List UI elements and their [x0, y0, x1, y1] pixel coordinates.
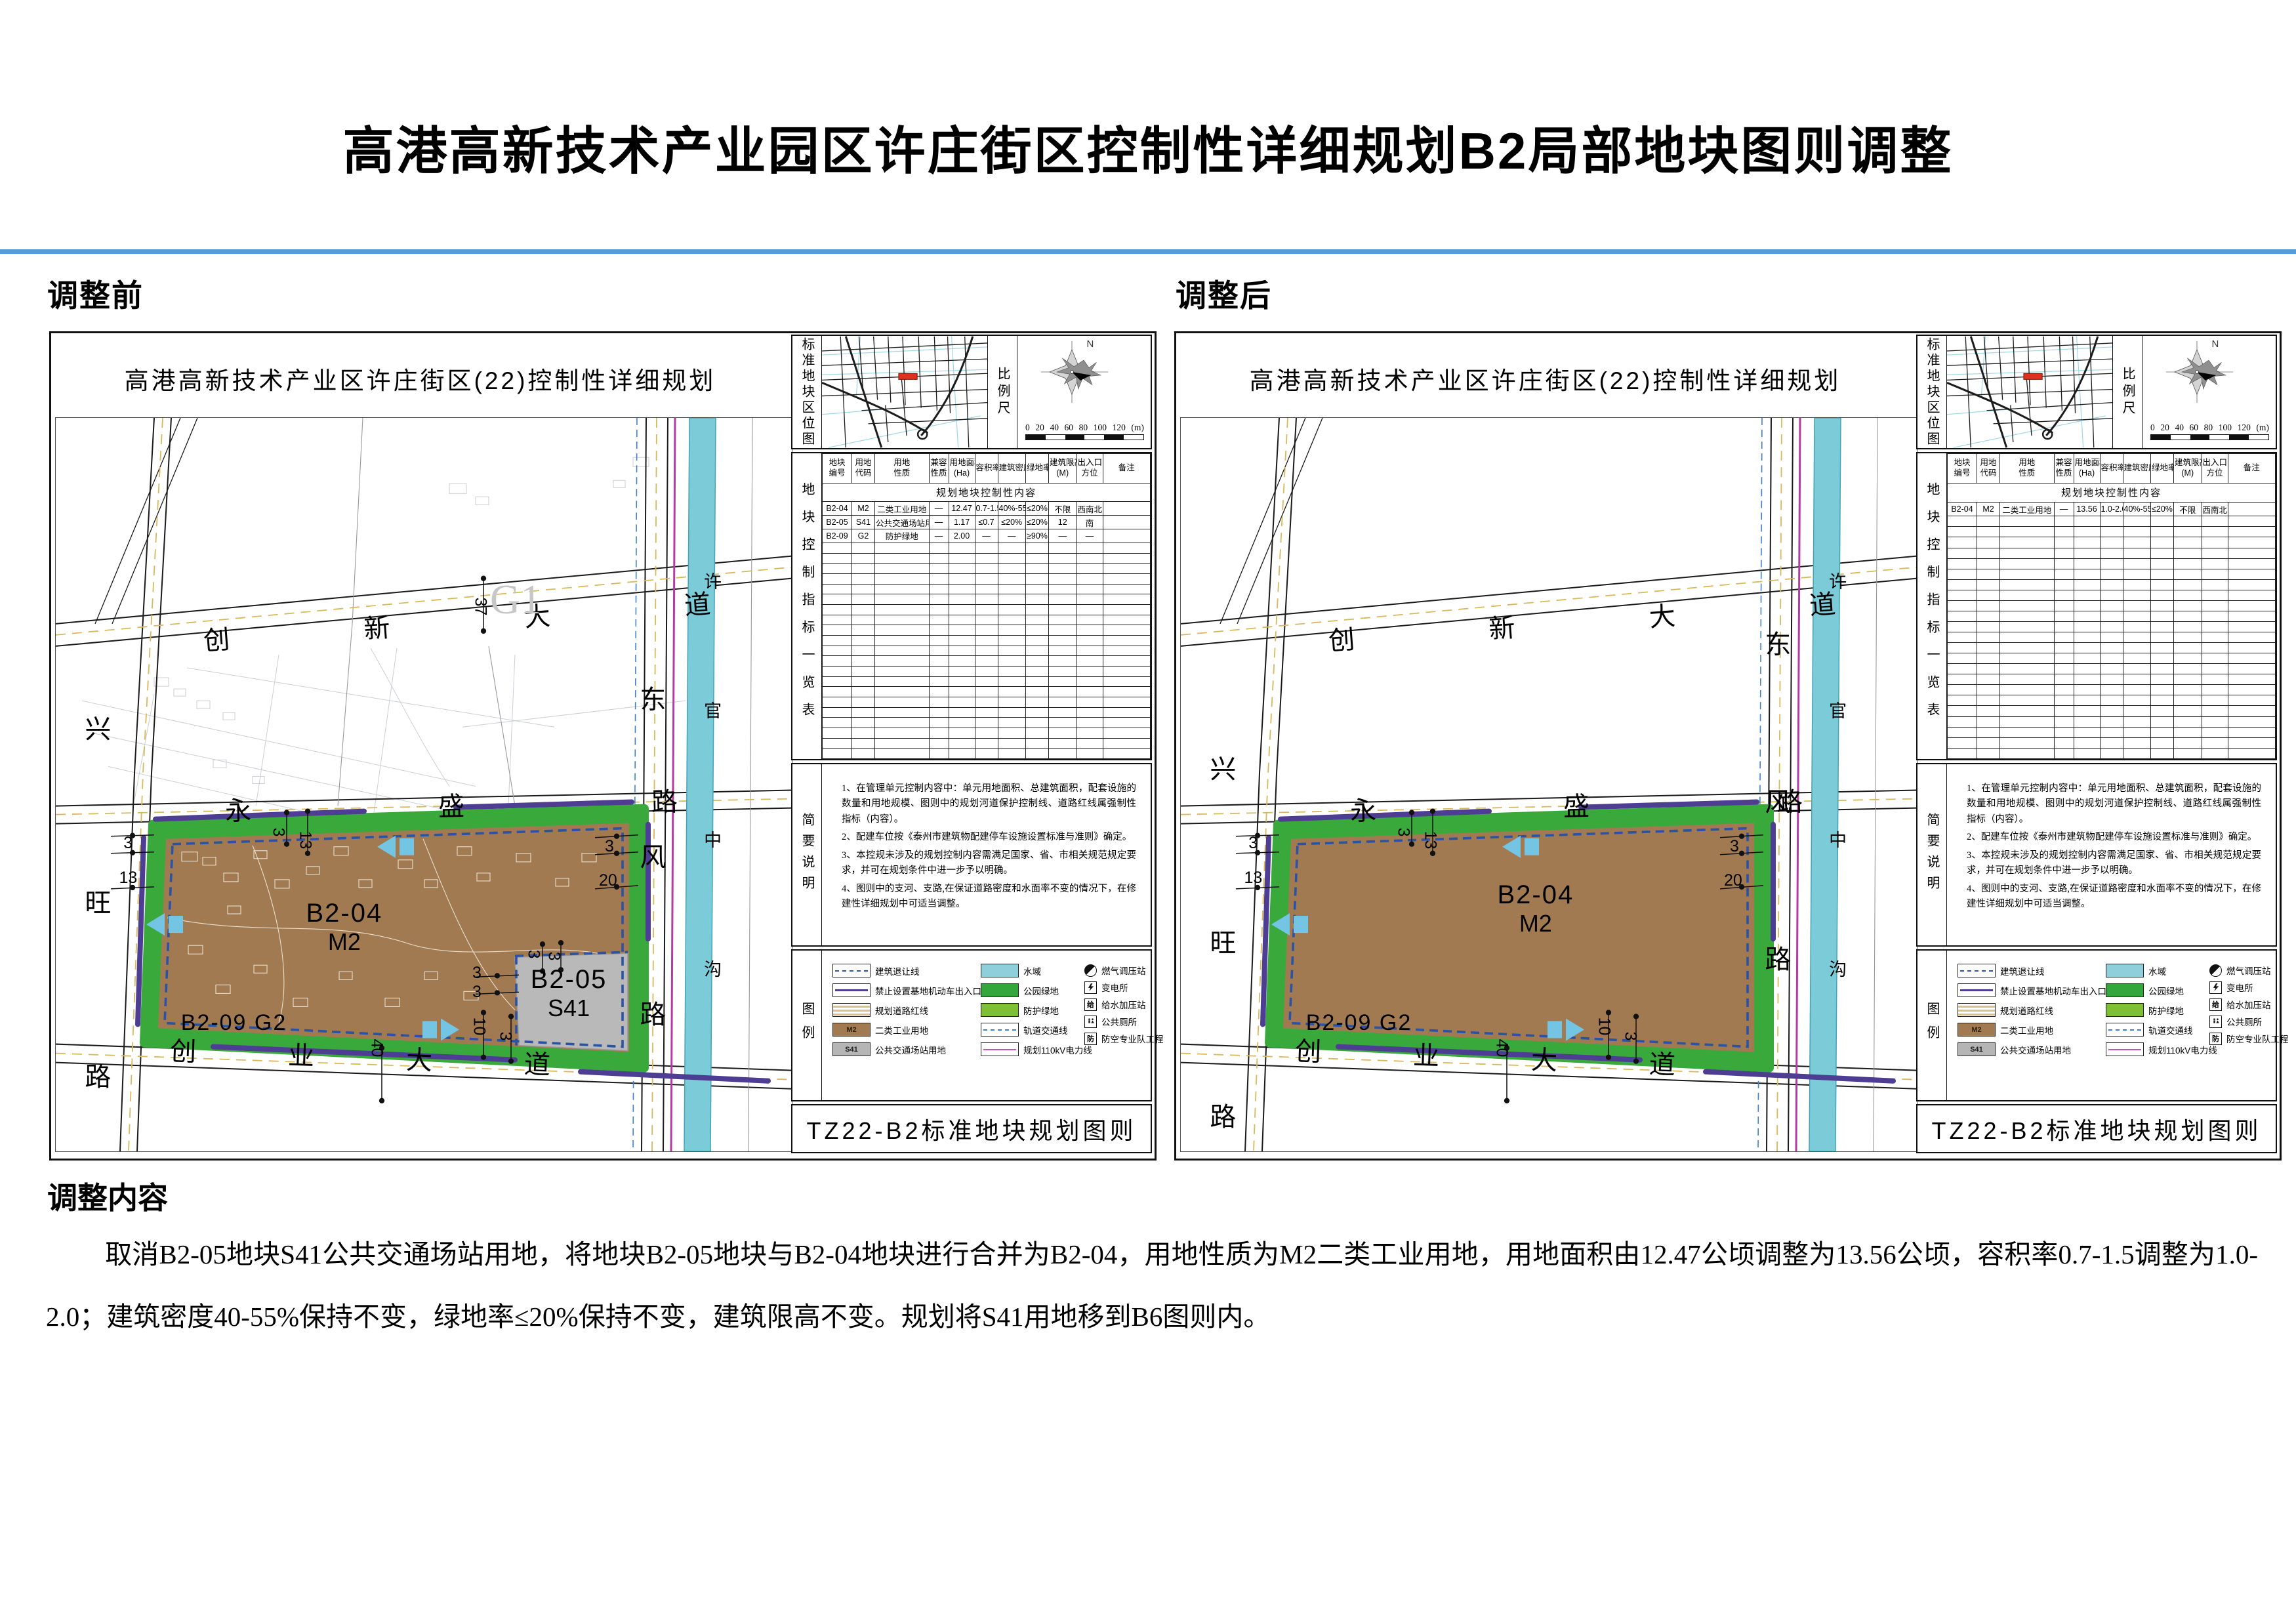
substation-lightning-icon [2209, 981, 2222, 994]
dim-bottom-3: 3 [1622, 1032, 1638, 1041]
table-cell: S41 [852, 516, 875, 529]
dim-bottom-10: 10 [1595, 1017, 1612, 1035]
power-line-110kv [671, 418, 675, 1151]
legend-item-m2: M2二类工业用地 [1958, 1023, 2101, 1037]
scale-bar: 0 20 40 60 80 100 120 (m) [2150, 422, 2269, 440]
col-header: 容积率 [2100, 454, 2123, 483]
panel-before: 高港高新技术产业区许庄街区(22)控制性详细规划 [49, 331, 1157, 1161]
legend-item-road-redline: 规划道路红线 [1958, 1003, 2101, 1017]
legend-item-park-green: 公园绿地 [2106, 983, 2205, 997]
locator-box: 标准地块区位图 [791, 335, 1152, 449]
table-cell: G2 [852, 529, 875, 543]
table-empty-row [823, 718, 1151, 728]
table-cell: — [929, 516, 949, 529]
park-green-swatch [2106, 983, 2144, 997]
road-redline-swatch [1958, 1003, 1996, 1017]
panel-sidebar: 标准地块区位图 [791, 335, 1152, 1153]
table-cell: 防护绿地 [875, 529, 930, 543]
legend-box: 图例 建筑退让线 禁止设置基地机动车出入口范围 规划道路红线 M2二类工业用地 … [1916, 949, 2277, 1101]
civil-defense-icon: 防 [2209, 1033, 2222, 1045]
scale-tick: 40 [1050, 422, 1059, 433]
sheet-title: TZ22-B2标准地块规划图则 [1917, 1112, 2276, 1146]
legend-item-setback-line: 建筑退让线 [1958, 964, 2101, 977]
dim-top-3: 3 [270, 828, 287, 837]
table-empty-row [1948, 632, 2276, 643]
notes-vertical-label: 简要说明 [1925, 813, 1938, 897]
table-cell [1103, 502, 1151, 516]
legend-item-substation: 变电所 [1084, 981, 1153, 994]
legend-item-water-pump: 给给水加压站 [2209, 998, 2278, 1011]
table-cell: — [1076, 529, 1103, 543]
m2-swatch: M2 [1958, 1023, 1996, 1037]
dim-top-3: 3 [1395, 828, 1412, 837]
setback-line-swatch [832, 964, 871, 977]
legend-item-civil-defense: 防防空专业队工程 [1084, 1032, 1153, 1045]
dim-road-40: 40 [368, 1039, 384, 1058]
locator-label: 标准地块区位图 [800, 337, 813, 447]
gas-regulator-icon [2209, 964, 2222, 977]
table-empty-row [1948, 653, 2276, 664]
panel-subtitle: 高港高新技术产业区许庄街区(22)控制性详细规划 [1176, 361, 1914, 396]
sheet-title-box: TZ22-B2标准地块规划图则 [1916, 1104, 2277, 1153]
page-title: 高港高新技术产业园区许庄街区控制性详细规划B2局部地块图则调整 [0, 110, 2296, 184]
scale-bar: 0 20 40 60 80 100 120 (m) [1025, 422, 1144, 440]
locator-box: 标准地块区位图 [1916, 335, 2277, 449]
table-cell: 西南北 [2202, 502, 2228, 516]
river-label-xuguan-ditch: 许官中沟 [1827, 572, 1845, 1089]
table-empty-row [1948, 621, 2276, 632]
col-header: 用地性质 [875, 454, 930, 483]
table-cell: ≥90% [1026, 529, 1049, 543]
col-header: 容积率 [975, 454, 998, 483]
table-empty-row [823, 687, 1151, 697]
col-header: 兼容性质 [929, 454, 949, 483]
locator-map [1947, 336, 2113, 448]
block-code: B2-04 [1497, 880, 1574, 910]
legend-item-buffer-green: 防护绿地 [981, 1003, 1080, 1017]
legend-item-road-redline: 规划道路红线 [832, 1003, 975, 1017]
dim-road-40: 40 [1493, 1039, 1509, 1058]
legend-item-s41: S41公共交通场站用地 [1958, 1042, 2101, 1056]
table-cell: B2-04 [1948, 502, 1977, 516]
dim-left-13: 13 [1244, 870, 1262, 886]
col-header: 用地性质 [2000, 454, 2055, 483]
scale-bar-segments [1025, 434, 1144, 440]
table-cell: 二类工业用地 [2000, 502, 2055, 516]
title-underline-rule [0, 249, 2296, 254]
table-empty-row [1948, 611, 2276, 621]
table-empty-row [1948, 748, 2276, 758]
legend-item-toilet: 公共厕所 [2209, 1015, 2278, 1028]
table-empty-row [823, 738, 1151, 749]
water-swatch [981, 964, 1019, 977]
notes-box: 简要说明 1、在管理单元控制内容中：单元用地面积、总建筑面积，配套设施的数量和用… [1916, 763, 2277, 947]
table-cell: B2-05 [823, 516, 852, 529]
table-empty-row [823, 646, 1151, 656]
table-cell [2228, 502, 2276, 516]
locator-map-drawing [1947, 336, 2112, 448]
table-cell: 二类工业用地 [875, 502, 930, 516]
table-empty-row [1948, 664, 2276, 674]
table-empty-row [823, 615, 1151, 625]
table-empty-row [823, 625, 1151, 636]
table-cell: 1.0-2.0 [2100, 502, 2123, 516]
table-empty-row [823, 594, 1151, 605]
table-empty-row [1948, 558, 2276, 569]
table-empty-row [823, 666, 1151, 676]
legend-item-rail: 轨道交通线 [981, 1023, 1080, 1037]
compass-rose-icon [2154, 340, 2240, 404]
sheet-title-box: TZ22-B2标准地块规划图则 [791, 1104, 1152, 1153]
table-cell: M2 [852, 502, 875, 516]
table-cell: — [929, 529, 949, 543]
table-empty-row [1948, 590, 2276, 600]
table-empty-row [1948, 600, 2276, 611]
water-pump-icon: 给 [2209, 998, 2222, 1011]
note-item: 1、在管理单元控制内容中：单元用地面积、总建筑面积，配套设施的数量和用地规模、图… [1967, 781, 2261, 827]
control-indicator-table: 规划地块控制性内容 地块编号 用地代码 用地性质 兼容性质 用地面积(Ha) 容… [1947, 453, 2276, 759]
table-cell: ≤20% [1026, 516, 1049, 529]
note-item: 2、配建车位按《泰州市建筑物配建停车设施设置标准与准则》确定。 [1967, 830, 2261, 845]
table-empty-row [1948, 569, 2276, 579]
block-label-B2-04: B2-04 M2 [306, 898, 382, 955]
table-cell: 公共交通场站用地 [875, 516, 930, 529]
table-empty-row [823, 656, 1151, 667]
table-empty-row [823, 573, 1151, 584]
table-cell: 不限 [2174, 502, 2202, 516]
dim-left-3: 3 [1248, 835, 1258, 852]
table-empty-row [1948, 674, 2276, 685]
table-empty-row [823, 728, 1151, 738]
table-empty-row [1948, 737, 2276, 748]
block-label-B2-04: B2-04 M2 [1497, 880, 1574, 937]
control-table-vertical-label: 地块控制指标一览表 [800, 482, 813, 730]
scale-tick: 20 [2160, 422, 2169, 433]
cadastral-underlay [82, 457, 686, 839]
dim-left-3: 3 [123, 835, 133, 852]
table-empty-row [823, 543, 1151, 553]
col-header: 建筑限高(M) [2174, 454, 2202, 483]
table-cell: 0.7-1.5 [975, 502, 998, 516]
col-header: 建筑密度 [998, 454, 1026, 483]
no-access-swatch [1958, 983, 1996, 997]
table-body: B2-04M2二类工业用地—13.561.0-2.040%-55%≤20%不限西… [1948, 502, 2276, 758]
dim-top-13: 13 [1422, 831, 1438, 849]
dim-right-20: 20 [1724, 873, 1742, 889]
water-pump-icon: 给 [1084, 998, 1097, 1011]
map-drawing [1181, 418, 1917, 1151]
table-cell [1103, 516, 1151, 529]
power-line-110kv [1796, 418, 1800, 1151]
scale-tick: 0 [1025, 422, 1030, 433]
col-header: 绿地率 [2151, 454, 2174, 483]
note-item: 2、配建车位按《泰州市建筑物配建停车设施设置标准与准则》确定。 [842, 830, 1136, 845]
s41-swatch: S41 [832, 1042, 871, 1056]
scale-tick: 80 [1079, 422, 1088, 433]
note-item: 3、本控规未涉及的规划控制内容需满足国家、省、市相关规范规定要求，并可在规划条件… [842, 848, 1136, 879]
sheet-title: TZ22-B2标准地块规划图则 [792, 1112, 1151, 1146]
table-empty-row [1948, 706, 2276, 716]
table-empty-row [1948, 643, 2276, 653]
legend-item-substation: 变电所 [2209, 981, 2278, 994]
table-empty-row [823, 749, 1151, 759]
locator-label: 标准地块区位图 [1925, 337, 1938, 447]
table-cell: 40%-55% [998, 502, 1026, 516]
dim-s41-top-3: 3 [525, 950, 542, 959]
page: { "page": { "title": "高港高新技术产业园区许庄街区控制性详… [0, 0, 2296, 1623]
scale-bar-numbers: 0 20 40 60 80 100 120 (m) [1025, 422, 1144, 433]
buffer-green-swatch [981, 1003, 1019, 1017]
legend-vertical-label: 图例 [1925, 1002, 1938, 1049]
table-empty-row [823, 584, 1151, 594]
control-table-box: 地块控制指标一览表 规划地块控制性内容 地块编号 用地代码 用地性质 [791, 452, 1152, 760]
road-label-dongfeng-road: 东风路 [637, 686, 663, 1152]
legend-item-park-green: 公园绿地 [981, 983, 1080, 997]
map-drawing [56, 418, 792, 1151]
panel-subtitle: 高港高新技术产业区许庄街区(22)控制性详细规划 [51, 361, 789, 396]
block-use-code: S41 [531, 995, 607, 1021]
rail-swatch [981, 1023, 1019, 1037]
legend-item-buffer-green: 防护绿地 [2106, 1003, 2205, 1017]
table-title: 规划地块控制性内容 [823, 483, 1151, 502]
scale-tick: 60 [2190, 422, 2199, 433]
setback-line-swatch [1958, 964, 1996, 977]
col-header: 用地代码 [1977, 454, 2000, 483]
table-header-row: 地块编号 用地代码 用地性质 兼容性质 用地面积(Ha) 容积率 建筑密度 绿地… [823, 454, 1151, 483]
legend-item-power: 规划110kV电力线 [2106, 1042, 2205, 1056]
civil-defense-icon: 防 [1084, 1033, 1097, 1045]
compass-area: N 0 20 40 60 80 100 [1017, 336, 1151, 448]
legend-item-gas-station: 燃气调压站 [2209, 964, 2278, 977]
table-cell: 西南北 [1076, 502, 1103, 516]
col-header: 地块编号 [823, 454, 852, 483]
table-empty-row [1948, 548, 2276, 558]
note-item: 4、图则中的支河、支路,在保证道路密度和水面率不变的情况下，在修建性详细规划中可… [842, 882, 1136, 913]
scale-label: 比例尺 [2121, 367, 2134, 418]
block-use-code: M2 [306, 928, 382, 955]
table-cell: 不限 [1049, 502, 1077, 516]
legend-box: 图例 建筑退让线 禁止设置基地机动车出入口范围 规划道路红线 M2二类工业用地 … [791, 949, 1152, 1101]
legend-item-civil-defense: 防防空专业队工程 [2209, 1032, 2278, 1045]
dim-s41-top-3b: 3 [545, 952, 562, 961]
table-header-row: 地块编号 用地代码 用地性质 兼容性质 用地面积(Ha) 容积率 建筑密度 绿地… [1948, 454, 2276, 483]
table-empty-row [823, 635, 1151, 646]
table-empty-row [823, 564, 1151, 574]
note-item: 3、本控规未涉及的规划控制内容需满足国家、省、市相关规范规定要求，并可在规划条件… [1967, 848, 2261, 879]
legend-item-rail: 轨道交通线 [2106, 1023, 2205, 1037]
compass-rose-icon [1029, 340, 1115, 404]
table-empty-row [1948, 516, 2276, 527]
block-code: B2-05 [531, 964, 607, 995]
scale-tick: 20 [1035, 422, 1044, 433]
table-body: B2-04M2二类工业用地—12.470.7-1.540%-55%≤20%不限西… [823, 502, 1151, 759]
table-empty-row [1948, 527, 2276, 537]
col-header: 建筑限高(M) [1049, 454, 1077, 483]
col-header: 兼容性质 [2054, 454, 2074, 483]
col-header: 用地面积(Ha) [949, 454, 975, 483]
table-cell: — [998, 529, 1026, 543]
table-empty-row [1948, 685, 2276, 695]
block-label-B2-09-G2: B2-09 G2 [1306, 1010, 1412, 1036]
dim-bottom-10: 10 [470, 1017, 487, 1035]
parcel-label-G1: G1 [490, 575, 541, 624]
scale-tick-unit: (m) [2256, 422, 2269, 433]
scale-bar-segments [2150, 434, 2269, 440]
dim-s41-left-3: 3 [472, 965, 482, 981]
table-row: B2-09G2防护绿地—2.00——≥90%—— [823, 529, 1151, 543]
control-table-box: 地块控制指标一览表 规划地块控制性内容 地块编号 用地代码 用地性质 [1916, 452, 2277, 760]
legend-item-water: 水域 [2106, 964, 2205, 977]
table-cell: M2 [1977, 502, 2000, 516]
scale-tick: 100 [1094, 422, 1107, 433]
public-toilet-icon [1084, 1016, 1097, 1028]
col-header: 用地面积(Ha) [2074, 454, 2100, 483]
scale-tick: 80 [2204, 422, 2213, 433]
scale-tick: 40 [2175, 422, 2184, 433]
note-item: 1、在管理单元控制内容中：单元用地面积、总建筑面积，配套设施的数量和用地规模、图… [842, 781, 1136, 827]
legend-item-gas-station: 燃气调压站 [1084, 964, 1153, 977]
legend-item-water-pump: 给给水加压站 [1084, 998, 1153, 1011]
table-cell: ≤20% [1026, 502, 1049, 516]
table-row: B2-04M2二类工业用地—13.561.0-2.040%-55%≤20%不限西… [1948, 502, 2276, 516]
m2-swatch: M2 [832, 1023, 871, 1037]
adjust-content-text: 取消B2-05地块S41公共交通场站用地，将地块B2-05地块与B2-04地块进… [46, 1223, 2258, 1348]
table-empty-row [1948, 537, 2276, 548]
table-empty-row [823, 707, 1151, 718]
compass-area: N 0 20 40 60 80 100 [2142, 336, 2276, 448]
s41-swatch: S41 [1958, 1042, 1996, 1056]
control-table-vertical-label: 地块控制指标一览表 [1925, 482, 1938, 730]
table-row: B2-05S41公共交通场站用地—1.17≤0.7≤20%≤20%12南 [823, 516, 1151, 529]
locator-map-drawing [822, 336, 987, 448]
park-green-swatch [981, 983, 1019, 997]
power-line-swatch [981, 1042, 1019, 1056]
table-cell: — [1049, 529, 1077, 543]
dim-top-13: 13 [297, 831, 313, 849]
rail-swatch [2106, 1023, 2144, 1037]
dim-right-20: 20 [599, 873, 617, 889]
road-label-xingwang-road: 兴旺路 [82, 715, 108, 1152]
col-header: 备注 [2228, 454, 2276, 483]
power-line-swatch [2106, 1042, 2144, 1056]
adjust-content-heading: 调整内容 [47, 1174, 168, 1218]
public-toilet-icon [2209, 1016, 2222, 1028]
legend-item-no-access: 禁止设置基地机动车出入口范围 [1958, 983, 2101, 997]
legend-item-power: 规划110kV电力线 [981, 1042, 1080, 1056]
section-label-before: 调整前 [47, 270, 144, 316]
table-cell: — [2054, 502, 2074, 516]
plan-map: 创新大道 永盛路 创业大道 兴旺路 东风路 许官中沟 B2-04 M2 B2-0… [1180, 417, 1917, 1152]
locator-map [822, 336, 988, 448]
col-header: 建筑密度 [2123, 454, 2151, 483]
table-empty-row [1948, 579, 2276, 590]
table-cell: 40%-55% [2123, 502, 2151, 516]
table-cell: 13.56 [2074, 502, 2100, 516]
section-label-after: 调整后 [1176, 270, 1272, 316]
table-cell [1103, 529, 1151, 543]
table-empty-row [1948, 727, 2276, 737]
water-swatch [2106, 964, 2144, 977]
scale-bar-numbers: 0 20 40 60 80 100 120 (m) [2150, 422, 2269, 433]
road-redline-swatch [832, 1003, 871, 1017]
scale-tick-unit: (m) [1131, 422, 1144, 433]
col-header: 备注 [1103, 454, 1151, 483]
buffer-green-swatch [2106, 1003, 2144, 1017]
col-header: 出入口方位 [1076, 454, 1103, 483]
substation-lightning-icon [1084, 981, 1097, 994]
dim-bottom-3: 3 [497, 1032, 513, 1041]
col-header: 地块编号 [1948, 454, 1977, 483]
scale-tick: 100 [2219, 422, 2232, 433]
dim-road-37: 37 [472, 598, 488, 616]
table-empty-row [823, 553, 1151, 564]
note-item: 4、图则中的支河、支路,在保证道路密度和水面率不变的情况下，在修建性详细规划中可… [1967, 882, 2261, 913]
scale-label: 比例尺 [996, 367, 1009, 418]
scale-tick: 120 [2238, 422, 2251, 433]
minor-roads [1874, 418, 1877, 1151]
control-indicator-table: 规划地块控制性内容 地块编号 用地代码 用地性质 兼容性质 用地面积(Ha) 容… [822, 453, 1151, 759]
dim-left-13: 13 [119, 870, 137, 886]
scale-tick: 0 [2150, 422, 2155, 433]
table-empty-row [1948, 716, 2276, 727]
table-cell: — [929, 502, 949, 516]
block-label-B2-05: B2-05 S41 [531, 964, 607, 1021]
road-label-dongfeng-road: 东风路 [1762, 630, 1788, 1103]
legend-item-setback-line: 建筑退让线 [832, 964, 975, 977]
table-empty-row [823, 676, 1151, 687]
table-cell: 2.00 [949, 529, 975, 543]
legend-item-no-access: 禁止设置基地机动车出入口范围 [832, 983, 975, 997]
block-label-B2-09-G2: B2-09 G2 [181, 1010, 287, 1036]
legend-item-m2: M2二类工业用地 [832, 1023, 975, 1037]
notes-box: 简要说明 1、在管理单元控制内容中：单元用地面积、总建筑面积，配套设施的数量和用… [791, 763, 1152, 947]
dim-right-3: 3 [1730, 838, 1739, 855]
road-label-xingwang-road: 兴旺路 [1207, 755, 1233, 1152]
col-header: 用地代码 [852, 454, 875, 483]
block-use-code: M2 [1497, 910, 1574, 937]
no-access-swatch [832, 983, 871, 997]
table-cell: ≤20% [2151, 502, 2174, 516]
scale-tick: 120 [1113, 422, 1126, 433]
plan-map: 创新大道 永盛路 创业大道 兴旺路 东风路 许官中沟 B2-04 M2 B2-0… [55, 417, 792, 1152]
table-cell: ≤20% [998, 516, 1026, 529]
block-code: B2-04 [306, 898, 382, 928]
table-empty-row [823, 697, 1151, 707]
dim-s41-left-3b: 3 [472, 984, 482, 1000]
table-cell: 1.17 [949, 516, 975, 529]
table-empty-row [823, 604, 1151, 615]
table-cell: ≤0.7 [975, 516, 998, 529]
legend-item-s41: S41公共交通场站用地 [832, 1042, 975, 1056]
legend-item-water: 水域 [981, 964, 1080, 977]
table-row: B2-04M2二类工业用地—12.470.7-1.540%-55%≤20%不限西… [823, 502, 1151, 516]
scale-tick: 60 [1065, 422, 1074, 433]
table-title: 规划地块控制性内容 [1948, 483, 2276, 503]
table-cell: B2-04 [823, 502, 852, 516]
table-cell: 南 [1076, 516, 1103, 529]
river-label-xuguan-ditch: 许官中沟 [702, 572, 720, 1089]
col-header: 出入口方位 [2202, 454, 2228, 483]
table-cell: — [975, 529, 998, 543]
table-cell: 12.47 [949, 502, 975, 516]
dim-right-3: 3 [605, 838, 614, 855]
legend-item-toilet: 公共厕所 [1084, 1015, 1153, 1028]
col-header: 绿地率 [1026, 454, 1049, 483]
panel-sidebar: 标准地块区位图 [1916, 335, 2277, 1153]
gas-regulator-icon [1084, 964, 1097, 977]
notes-vertical-label: 简要说明 [800, 813, 813, 897]
table-cell: 12 [1049, 516, 1077, 529]
